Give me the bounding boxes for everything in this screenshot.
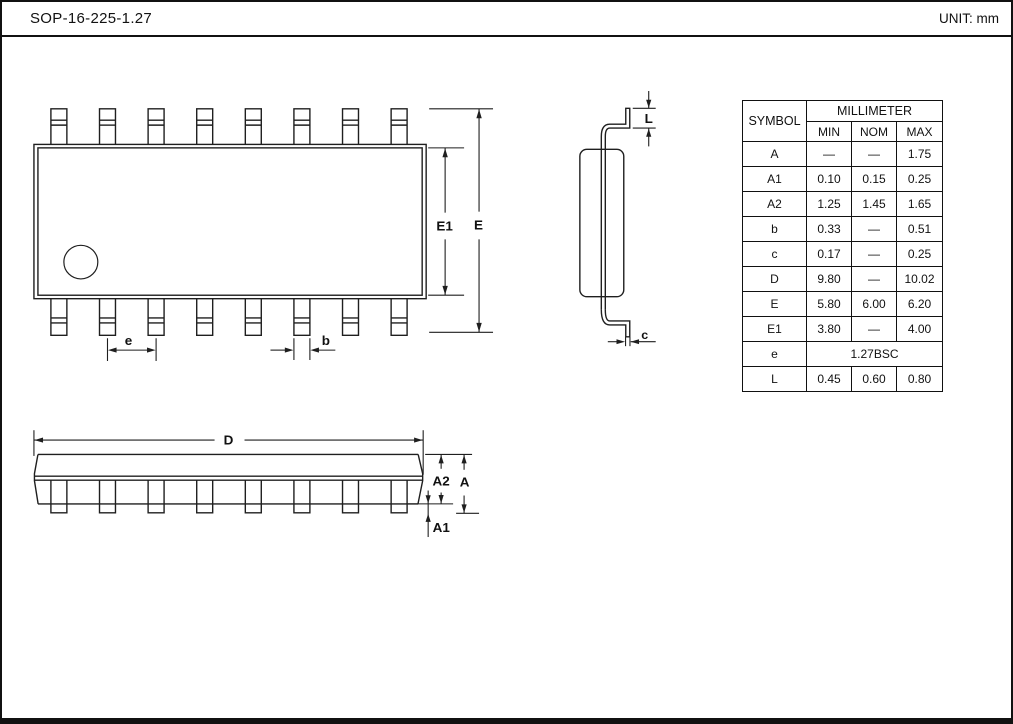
symbol-cell: A2 xyxy=(743,192,807,217)
max-cell: 0.51 xyxy=(897,217,943,242)
max-cell: 10.02 xyxy=(897,267,943,292)
lead-bottom-bend xyxy=(601,310,629,337)
label-E1: E1 xyxy=(436,219,453,234)
dimension-table: SYMBOL MILLIMETER MIN NOM MAX A — — 1.75… xyxy=(742,100,943,392)
min-cell: 1.25 xyxy=(807,192,852,217)
symbol-cell: D xyxy=(743,267,807,292)
min-cell: 3.80 xyxy=(807,317,852,342)
symbol-cell: A xyxy=(743,142,807,167)
min-cell: 0.17 xyxy=(807,242,852,267)
label-A: A xyxy=(460,475,470,490)
max-cell: 4.00 xyxy=(897,317,943,342)
side-view-dimensions xyxy=(608,91,656,346)
nom-cell: — xyxy=(852,317,897,342)
top-view xyxy=(34,109,426,335)
max-header-cell: MAX xyxy=(897,122,943,142)
table-row: c 0.17 — 0.25 xyxy=(743,242,943,267)
table-row: D 9.80 — 10.02 xyxy=(743,267,943,292)
max-cell: 1.75 xyxy=(897,142,943,167)
package-body-outer xyxy=(34,144,426,298)
min-cell: — xyxy=(807,142,852,167)
symbol-header-cell: SYMBOL xyxy=(743,101,807,142)
body-left-profile xyxy=(34,454,38,503)
max-cell: 0.25 xyxy=(897,167,943,192)
nom-cell: 1.45 xyxy=(852,192,897,217)
symbol-cell: b xyxy=(743,217,807,242)
datasheet-page: SOP-16-225-1.27 UNIT: mm xyxy=(0,0,1013,724)
label-c: c xyxy=(641,328,648,342)
min-header-cell: MIN xyxy=(807,122,852,142)
label-E: E xyxy=(474,218,483,233)
table-row: E 5.80 6.00 6.20 xyxy=(743,292,943,317)
table-row: L 0.45 0.60 0.80 xyxy=(743,367,943,392)
max-cell: 6.20 xyxy=(897,292,943,317)
nom-cell: 0.60 xyxy=(852,367,897,392)
table-row: A — — 1.75 xyxy=(743,142,943,167)
max-cell: 0.80 xyxy=(897,367,943,392)
front-view-dimensions xyxy=(34,430,479,537)
label-A2: A2 xyxy=(433,474,450,489)
symbol-cell: E1 xyxy=(743,317,807,342)
label-e: e xyxy=(125,333,133,348)
label-A1: A1 xyxy=(433,520,451,535)
min-cell: 5.80 xyxy=(807,292,852,317)
millimeter-header-cell: MILLIMETER xyxy=(807,101,943,122)
table-row: A1 0.10 0.15 0.25 xyxy=(743,167,943,192)
lead-top-bend xyxy=(601,108,629,136)
nom-cell: 0.15 xyxy=(852,167,897,192)
table-row: E1 3.80 — 4.00 xyxy=(743,317,943,342)
min-cell: 0.45 xyxy=(807,367,852,392)
min-cell: 0.33 xyxy=(807,217,852,242)
span-cell: 1.27BSC xyxy=(807,342,943,367)
label-b: b xyxy=(322,333,330,348)
bottom-pins xyxy=(51,299,407,336)
side-view xyxy=(580,108,630,336)
table-row: A2 1.25 1.45 1.65 xyxy=(743,192,943,217)
nom-cell: — xyxy=(852,142,897,167)
dimension-A1 xyxy=(426,491,431,537)
table-row: e 1.27BSC xyxy=(743,342,943,367)
symbol-cell: A1 xyxy=(743,167,807,192)
pin1-indicator-circle xyxy=(64,245,98,279)
table-header-row-1: SYMBOL MILLIMETER xyxy=(743,101,943,122)
package-body-inner xyxy=(38,148,422,295)
symbol-cell: c xyxy=(743,242,807,267)
label-D: D xyxy=(224,433,234,448)
nom-cell: 6.00 xyxy=(852,292,897,317)
nom-cell: — xyxy=(852,267,897,292)
symbol-cell: E xyxy=(743,292,807,317)
table-row: b 0.33 — 0.51 xyxy=(743,217,943,242)
label-L: L xyxy=(645,111,653,126)
min-cell: 9.80 xyxy=(807,267,852,292)
symbol-cell: L xyxy=(743,367,807,392)
max-cell: 1.65 xyxy=(897,192,943,217)
nom-cell: — xyxy=(852,242,897,267)
top-pins xyxy=(51,109,407,145)
dimension-c xyxy=(608,337,656,346)
nom-cell: — xyxy=(852,217,897,242)
body-right-profile xyxy=(418,454,423,503)
nom-header-cell: NOM xyxy=(852,122,897,142)
symbol-cell: e xyxy=(743,342,807,367)
front-view xyxy=(34,454,422,512)
max-cell: 0.25 xyxy=(897,242,943,267)
front-leads xyxy=(51,480,407,513)
min-cell: 0.10 xyxy=(807,167,852,192)
